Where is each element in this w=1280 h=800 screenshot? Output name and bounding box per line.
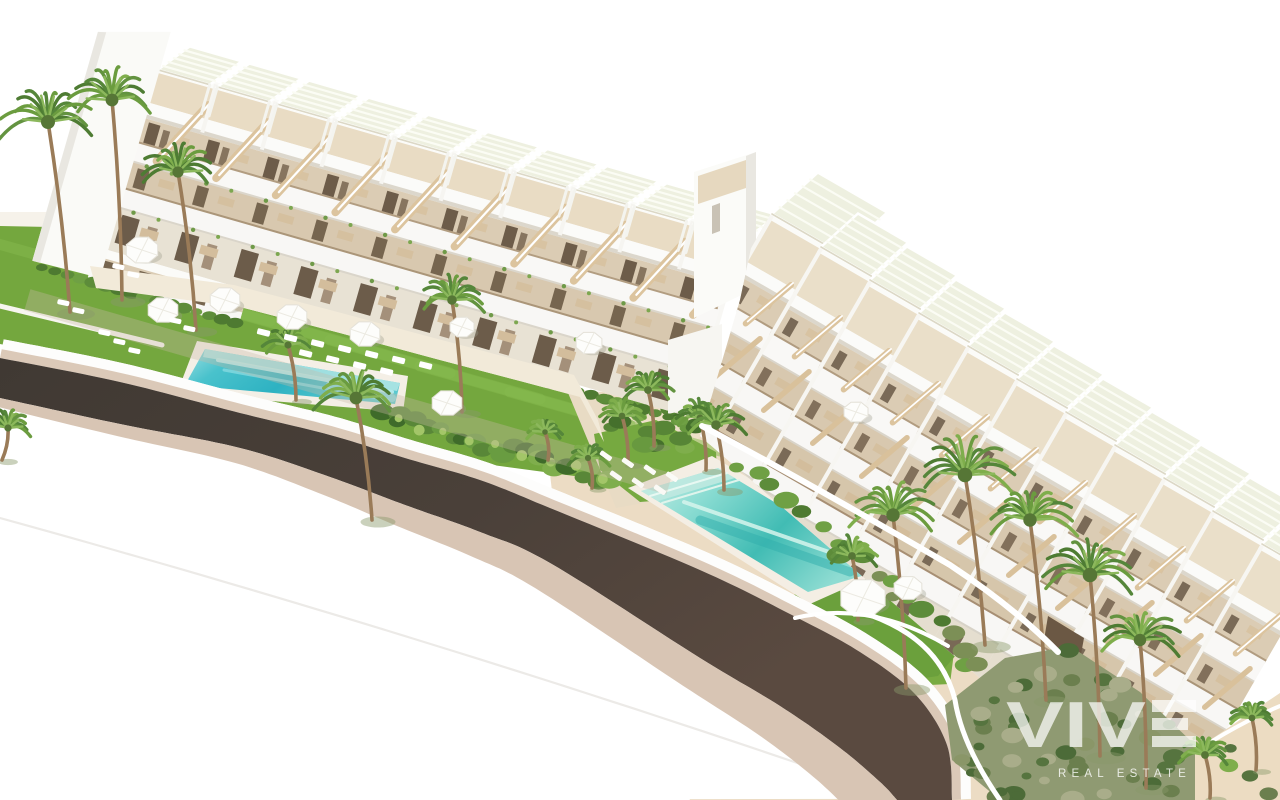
svg-text:VIV: VIV (1006, 688, 1146, 761)
svg-text:REAL ESTATE: REAL ESTATE (1058, 768, 1191, 780)
